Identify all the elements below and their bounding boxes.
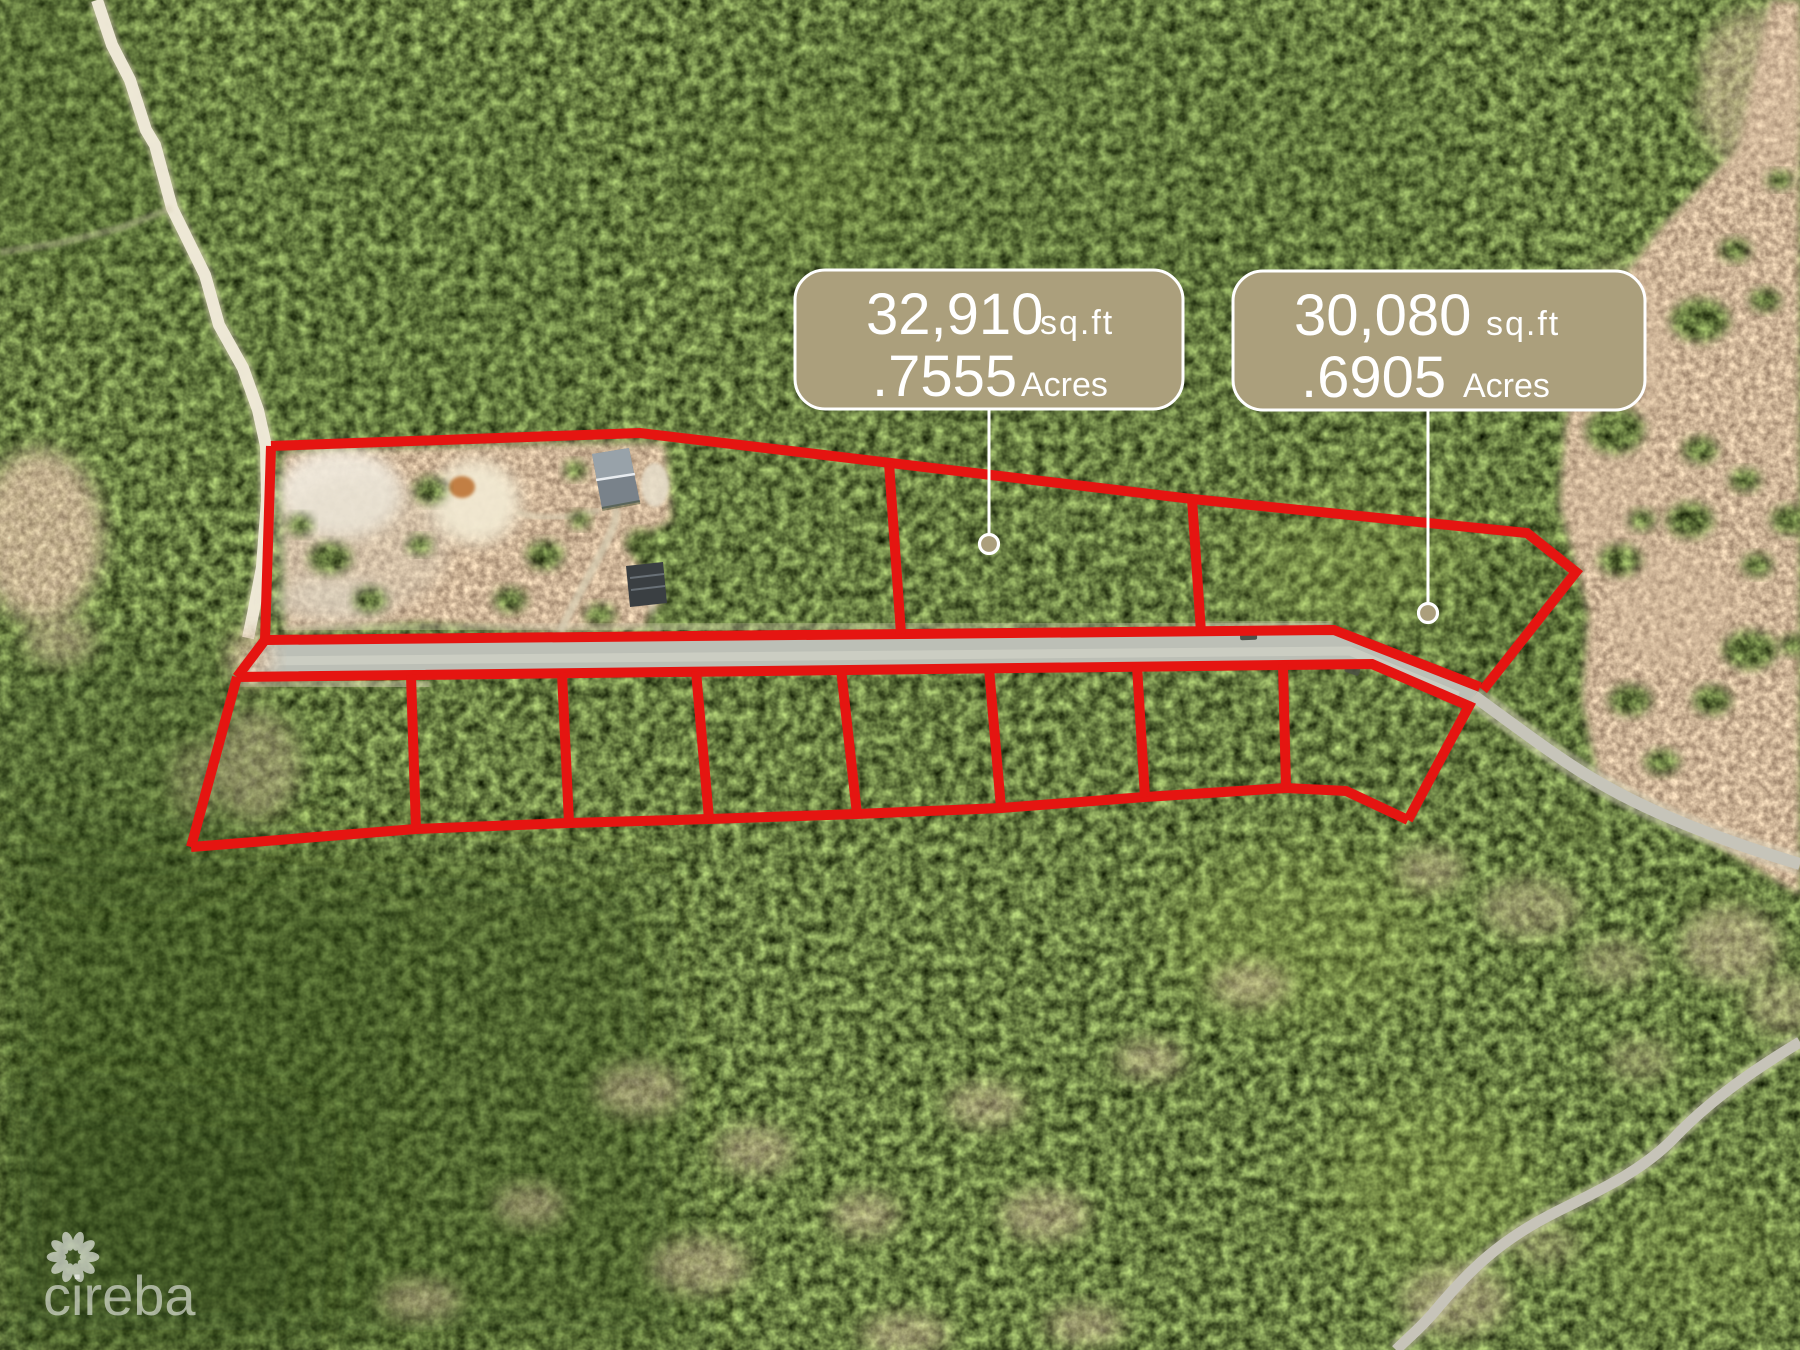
svg-text:Acres: Acres [1021, 366, 1108, 404]
svg-text:sq.ft: sq.ft [1486, 305, 1560, 343]
svg-text:sq.ft: sq.ft [1040, 304, 1114, 342]
svg-text:30,080: 30,080 [1294, 283, 1471, 348]
svg-text:Acres: Acres [1463, 367, 1550, 405]
svg-text:.7555: .7555 [872, 344, 1017, 409]
svg-text:32,910: 32,910 [866, 282, 1043, 347]
svg-text:cireba: cireba [43, 1264, 196, 1327]
svg-text:.6905: .6905 [1301, 345, 1446, 410]
